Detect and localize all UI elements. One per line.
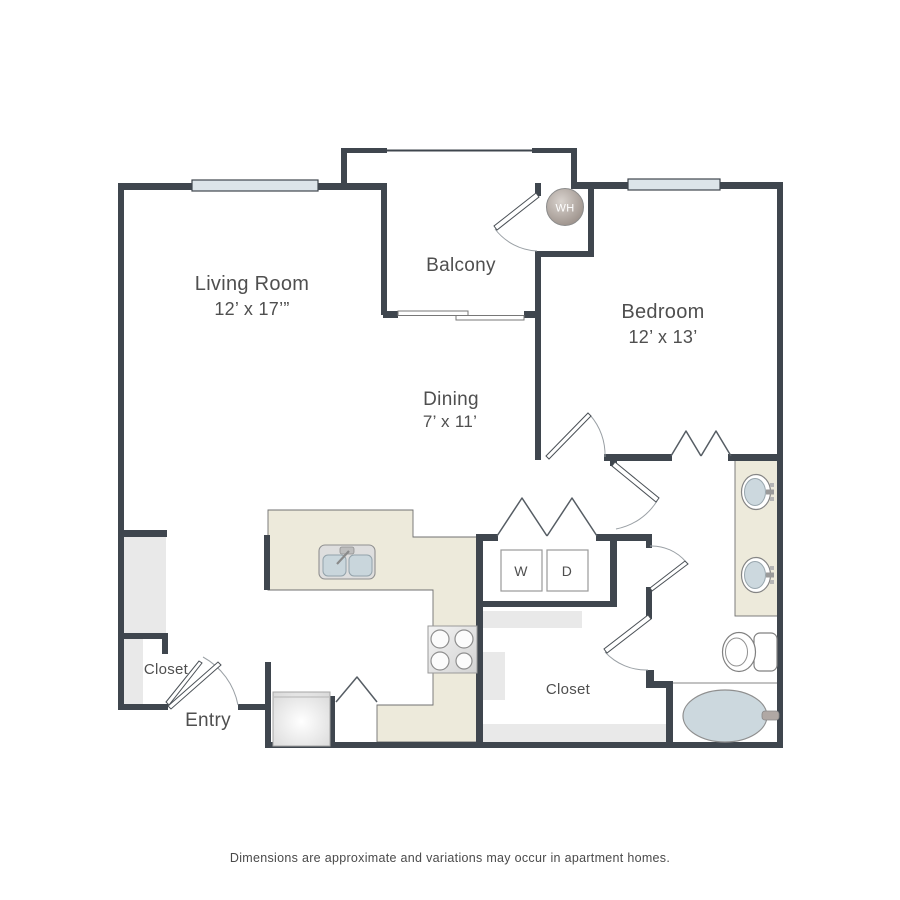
balcony-sliding-door (398, 311, 524, 320)
wall-entry-closet-stub (162, 633, 168, 654)
bathroom-door-arc (650, 546, 686, 562)
bedroom-label: Bedroom (621, 301, 704, 323)
toilet (723, 633, 778, 672)
refrigerator (273, 692, 330, 746)
bedroom-door-arc (590, 415, 605, 457)
walkin-closet-label: Closet (546, 681, 591, 698)
wall-bottom-outer (265, 742, 783, 748)
wall-wh-right (588, 187, 594, 257)
water-heater-label: WH (556, 203, 575, 215)
wall-wd-bottom (476, 601, 617, 607)
bathroom-door (650, 561, 688, 591)
living-room-dims: 12’ x 17’” (214, 299, 289, 319)
wall-wh-bottom (535, 251, 594, 257)
wall-closet-right (666, 681, 673, 748)
fixtures-layer (273, 189, 779, 747)
water-heater-door (494, 193, 539, 230)
wall-counter-stub (264, 535, 270, 590)
kitchen-sink (319, 545, 375, 579)
wall-wd-top-right (596, 534, 652, 541)
wall-nook-bottom (118, 633, 168, 639)
wall-bath-mid (646, 587, 652, 619)
dining-label: Dining (423, 389, 479, 410)
bedroom-door (546, 413, 591, 459)
entry-closet-label: Closet (144, 661, 189, 678)
wall-balcony-rail-right (532, 148, 577, 153)
disclaimer-text: Dimensions are approximate and variation… (230, 851, 670, 865)
laundry-bifold-right (547, 498, 597, 536)
left-nook-shelf (124, 537, 166, 633)
washer-label: W (514, 563, 528, 579)
stove (428, 626, 477, 673)
wall-nook-top (118, 530, 167, 537)
dryer-label: D (562, 563, 572, 579)
wall-balcony-left (341, 148, 347, 190)
wall-dining-bedroom (535, 251, 541, 460)
entry-label: Entry (185, 710, 231, 731)
wall-left-outer (118, 183, 124, 710)
bedroom-dims: 12’ x 13’ (628, 327, 697, 347)
wall-slider-stub-left (383, 311, 398, 318)
living-room-window (192, 180, 318, 191)
wall-slider-stub-right (524, 311, 535, 318)
bedroom-bifold-right (701, 431, 731, 456)
wall-balcony-rail-left (341, 148, 387, 153)
bedroom-bifold-left (671, 431, 701, 456)
floorplan-canvas: Living Room 12’ x 17’” Balcony Bedroom 1… (0, 0, 900, 900)
bedroom-window (628, 179, 720, 190)
wall-right-outer (777, 182, 783, 748)
hall-door (612, 462, 659, 502)
walkin-closet-shelf-top (483, 611, 582, 628)
entry-closet-shelf (124, 639, 143, 704)
wall-living-east (381, 187, 387, 315)
bathtub (673, 683, 779, 742)
wh-door-arc (495, 229, 537, 251)
walkin-closet-door-arc (605, 652, 648, 670)
walkin-closet-door (604, 615, 651, 653)
wall-vestibule-divider (610, 538, 617, 607)
walkin-closet-shelf-left (483, 652, 505, 700)
windows-layer (192, 179, 720, 191)
hall-door-arc (616, 501, 657, 529)
wall-bedroom-bottom-right (728, 454, 780, 461)
floorplan-page: Living Room 12’ x 17’” Balcony Bedroom 1… (0, 0, 900, 900)
balcony-label: Balcony (426, 255, 496, 276)
dining-dims: 7’ x 11’ (423, 412, 477, 431)
pantry-bifold (336, 677, 377, 702)
walkin-closet-shelf-bottom (483, 724, 668, 742)
wall-kitchen-left (265, 662, 271, 748)
wall-bottom-entry-left (118, 704, 168, 710)
laundry-bifold-left (497, 498, 547, 536)
living-room-label: Living Room (195, 273, 309, 295)
